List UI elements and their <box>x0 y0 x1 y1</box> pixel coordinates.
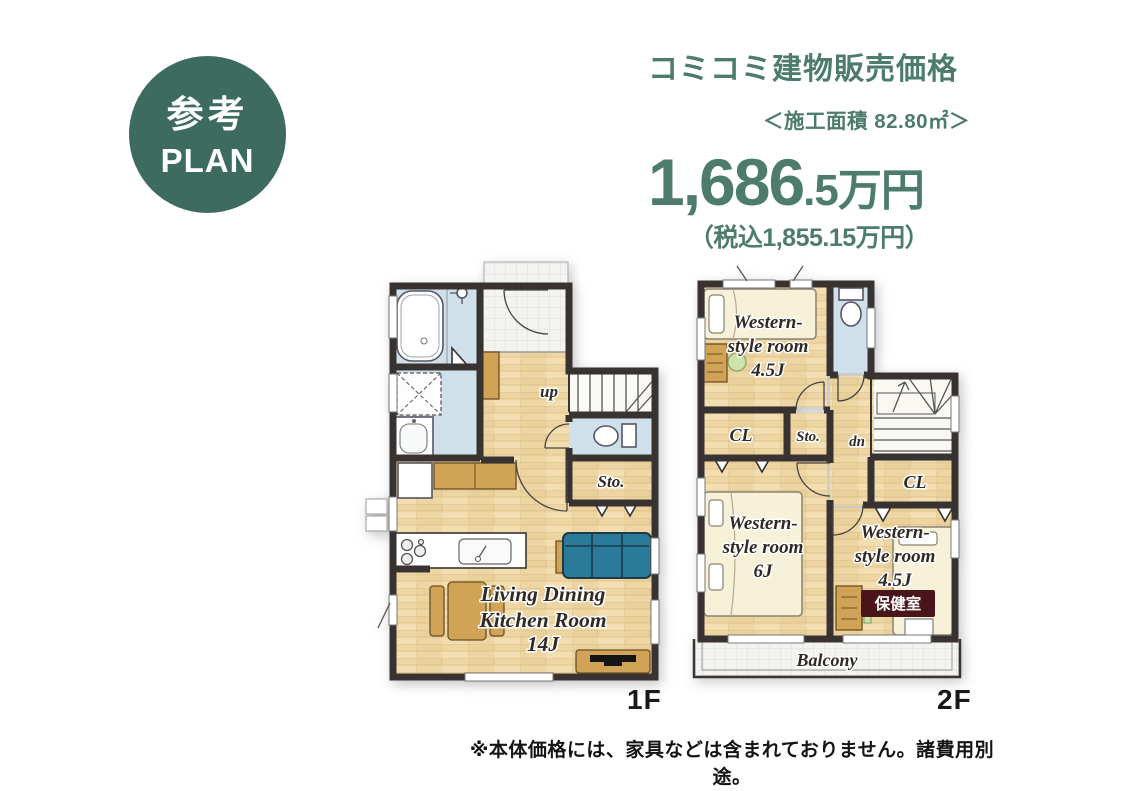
construction-area-label: ＜施工面積 82.80㎡＞ <box>648 104 970 134</box>
label-room-c-2: style room <box>854 546 936 567</box>
label-room-b-1: Western- <box>728 513 797 534</box>
label-room-b-3: 6J <box>754 561 774 582</box>
label-closet-left: CL <box>729 425 752 445</box>
price-unit: .5万円 <box>803 166 924 215</box>
stairs-floor-2f <box>874 376 955 457</box>
label-room-a-1: Western- <box>733 312 802 333</box>
label-room-b-2: style room <box>722 537 804 558</box>
pillow-icon <box>709 564 723 590</box>
dining-bench-icon <box>430 586 444 636</box>
label-balcony: Balcony <box>796 650 859 670</box>
toilet-icon <box>594 426 618 446</box>
badge-text-reference: 参考 <box>129 84 286 138</box>
label-ldk-2: Kitchen Room <box>478 608 606 632</box>
sofa-icon <box>563 533 651 578</box>
pillow-icon <box>709 295 724 333</box>
price-title: コミコミ建物販売価格 <box>648 44 970 88</box>
genkan-floor <box>481 286 569 352</box>
floor-label-1f: 1F <box>627 684 662 716</box>
label-room-a-2: style room <box>727 336 809 357</box>
disclaimer-note: ※本体価格には、家具などは含まれておりません。諸費用別途。 <box>452 735 1012 789</box>
label-storage-2f: Sto. <box>796 429 820 445</box>
label-health-room: 保健室 <box>874 594 922 613</box>
back-door-step <box>366 499 387 514</box>
floor-label-2f: 2F <box>937 684 972 716</box>
label-room-c-3: 4.5J <box>877 570 912 591</box>
pillow-icon <box>709 500 723 526</box>
shoe-cabinet-icon <box>482 352 499 399</box>
label-room-c-1: Western- <box>860 522 929 543</box>
kitchen-sink-icon <box>459 539 511 564</box>
label-storage-1f: Sto. <box>598 472 625 491</box>
floor-plan-2f: 保健室 Western- style room 4.5J CL Sto. dn … <box>680 243 980 725</box>
toilet-icon-2f <box>841 302 861 326</box>
label-up: up <box>540 382 558 401</box>
plan-badge: 参考 PLAN <box>129 56 286 213</box>
label-room-a-3: 4.5J <box>750 360 785 381</box>
floor-plan-1f: up Sto. Living Dining Kitchen Room 14J <box>360 250 680 720</box>
health-room-tag: 保健室 <box>861 590 935 617</box>
price-block: コミコミ建物販売価格 ＜施工面積 82.80㎡＞ 1,686.5万円 （税込1,… <box>648 44 970 254</box>
label-ldk-3: 14J <box>527 632 561 656</box>
label-closet-right: CL <box>903 472 926 492</box>
badge-text-plan: PLAN <box>129 142 286 180</box>
label-ldk-1: Living Dining <box>480 582 606 606</box>
toilet-2f <box>839 288 863 326</box>
price-main: 1,686.5万円 <box>648 144 970 220</box>
refrigerator-icon <box>398 463 432 498</box>
bathtub-icon <box>397 291 443 361</box>
label-down: dn <box>849 434 865 450</box>
tv-icon <box>590 655 636 662</box>
price-amount: 1,686 <box>648 145 803 219</box>
